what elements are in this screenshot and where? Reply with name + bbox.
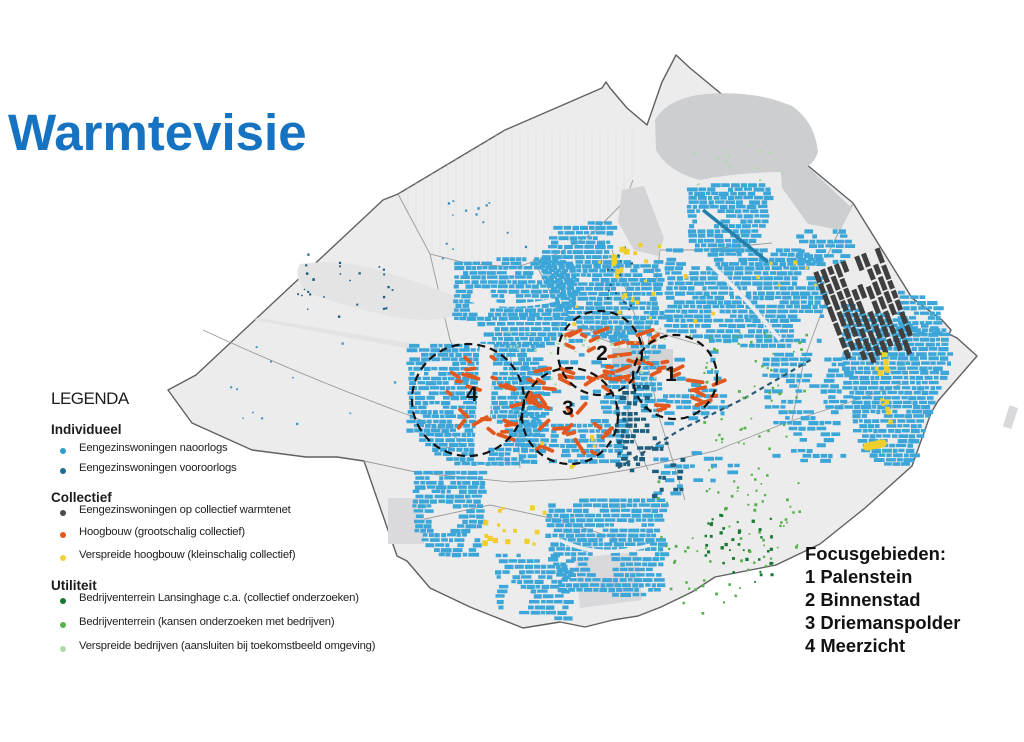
- svg-text:1: 1: [665, 363, 677, 386]
- svg-text:3: 3: [562, 397, 574, 420]
- svg-text:4: 4: [466, 383, 478, 406]
- svg-text:2: 2: [596, 342, 608, 365]
